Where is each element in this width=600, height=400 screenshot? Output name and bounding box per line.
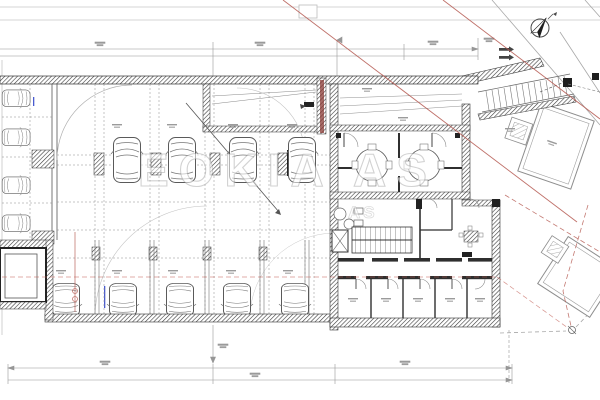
car-icon — [50, 284, 311, 316]
watermark: EOKIA AS AS — [138, 144, 437, 222]
elevator — [332, 230, 348, 252]
corridor — [338, 258, 492, 279]
highlighted-wall — [320, 80, 324, 133]
wall-top — [0, 76, 478, 84]
storage-rooms — [348, 278, 485, 318]
blue-note — [33, 97, 34, 106]
wall-bottom-garage — [45, 314, 335, 322]
stairs — [352, 227, 412, 253]
watermark-subtext: AS — [348, 203, 378, 222]
column-grid — [57, 84, 330, 316]
lower-left-room — [0, 240, 46, 309]
neighbor-building-lower — [526, 229, 600, 317]
watermark-text: EOKIA AS — [138, 144, 437, 196]
floor-plan-drawing: EOKIA AS AS — [0, 0, 600, 400]
entry-band — [340, 88, 462, 121]
parking-row-bottom — [50, 240, 311, 316]
floor-plan-page: EOKIA AS AS — [0, 0, 600, 400]
north-arrow-icon — [531, 12, 557, 38]
door-arc — [356, 279, 485, 289]
car-icon — [2, 88, 30, 233]
survey-point-marker — [568, 326, 576, 334]
furniture-table — [464, 231, 478, 242]
wall-left-wing — [330, 84, 338, 330]
dimension-lines-bottom — [8, 325, 512, 384]
